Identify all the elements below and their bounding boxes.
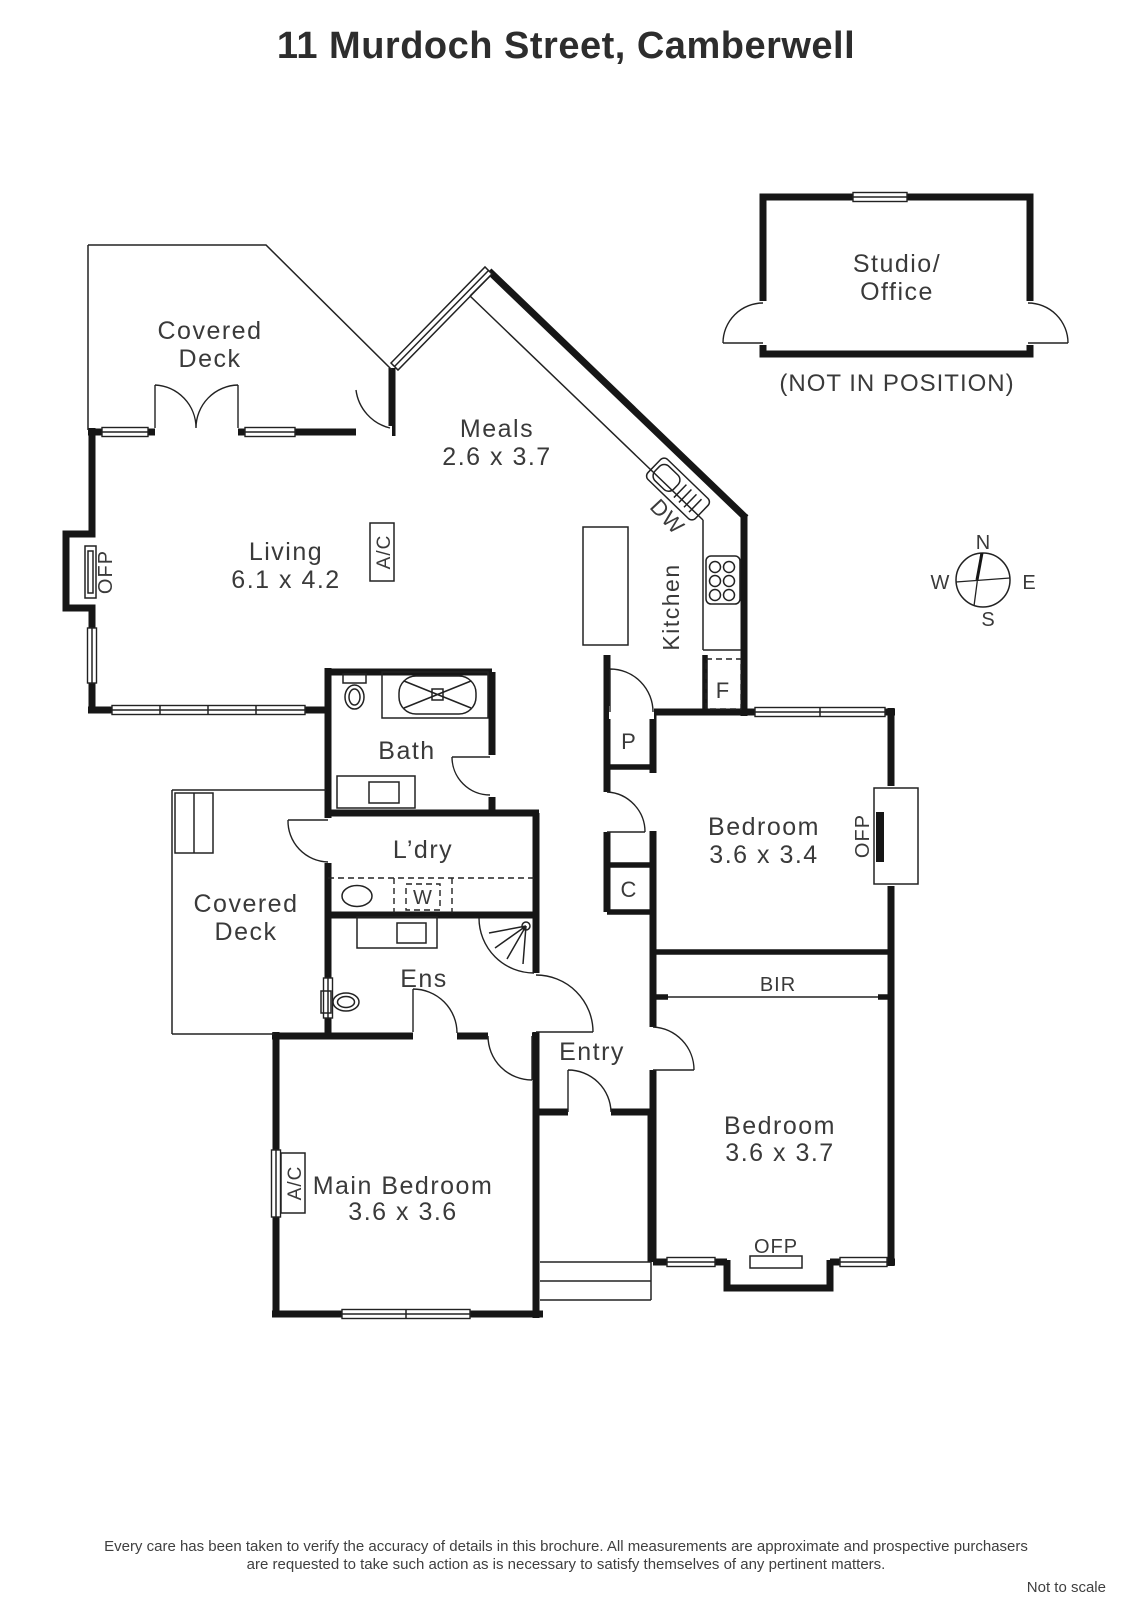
laundry-trough-icon <box>342 886 372 907</box>
bedroom2-bottom-window-right <box>840 1258 887 1267</box>
cooktop-icon <box>706 556 740 604</box>
bathtub-icon <box>382 672 488 718</box>
studio-window <box>853 193 907 202</box>
bedroom1-label: Bedroom <box>708 813 820 841</box>
compass-north-label: N <box>976 532 990 554</box>
meals-label: Meals <box>460 415 534 443</box>
living-top-window-1 <box>102 428 148 437</box>
bath-label: Bath <box>378 737 435 765</box>
living-label: Living <box>249 538 323 566</box>
bedroom2-label: Bedroom <box>724 1112 836 1140</box>
main-bedroom-bottom-window <box>342 1310 470 1319</box>
main-bedroom-left-window <box>272 1150 281 1217</box>
bedroom2-dims: 3.6 x 3.7 <box>725 1139 834 1167</box>
living-ofp-label: OFP <box>95 550 117 594</box>
ensuite-door <box>413 989 457 1033</box>
island-bench <box>583 527 628 645</box>
main-bedroom-dims: 3.6 x 3.6 <box>348 1198 457 1226</box>
compass: N S W E <box>931 532 1036 631</box>
page-title: 11 Murdoch Street, Camberwell <box>277 25 855 67</box>
disclaimer-line-1: Every care has been taken to verify the … <box>104 1538 1028 1555</box>
pantry-door <box>610 669 653 712</box>
scale-note: Not to scale <box>1027 1579 1106 1596</box>
bedroom1-passage-door <box>607 792 645 832</box>
laundry-deck-door <box>288 820 328 862</box>
covered-deck-left-label-2: Deck <box>215 918 278 946</box>
living-top-window-2 <box>245 428 295 437</box>
studio-note: (NOT IN POSITION) <box>779 370 1014 397</box>
living-ac-unit: A/C <box>370 523 395 581</box>
bedroom2-door <box>653 1027 694 1070</box>
main-bedroom-label: Main Bedroom <box>313 1172 494 1200</box>
compass-south-label: S <box>981 609 994 631</box>
entry-label: Entry <box>559 1038 625 1066</box>
pantry-label: P <box>621 729 637 754</box>
main-bedroom-door <box>488 1036 532 1080</box>
covered-deck-top-label-2: Deck <box>179 345 242 373</box>
porch-steps <box>540 1262 651 1300</box>
bath-door <box>452 757 490 795</box>
hall-entry-door <box>536 975 593 1032</box>
meals-dims: 2.6 x 3.7 <box>442 443 551 471</box>
compass-west-label: W <box>931 572 950 594</box>
shower-icon <box>479 918 534 973</box>
living-ac-label: A/C <box>374 535 395 570</box>
bath-toilet-icon <box>343 674 366 709</box>
living-bottom-window <box>112 706 305 715</box>
ensuite-label: Ens <box>400 965 448 993</box>
front-door <box>568 1070 611 1112</box>
laundry-label: L’dry <box>393 836 453 864</box>
washer-label: W <box>413 887 433 909</box>
pantry-door-opening <box>609 706 654 719</box>
bedroom1-dims: 3.6 x 3.4 <box>709 841 818 869</box>
main-bedroom-ac-label: A/C <box>285 1166 306 1201</box>
fridge-label: F <box>716 678 730 703</box>
covered-deck-top-label-1: Covered <box>158 317 263 345</box>
kitchen-label: Kitchen <box>658 563 684 650</box>
studio-label-1: Studio/ <box>853 250 941 278</box>
living-left-window <box>88 628 97 683</box>
living-dims: 6.1 x 4.2 <box>231 566 340 594</box>
meals-diagonal-window <box>391 267 492 370</box>
french-doors <box>155 385 238 428</box>
bedroom2-ofp-label: OFP <box>754 1236 798 1258</box>
meals-deck-door <box>356 390 390 428</box>
compass-east-label: E <box>1022 572 1035 594</box>
disclaimer-line-2: are requested to take such action as is … <box>247 1556 886 1573</box>
bedroom2-bottom-window-left <box>667 1258 715 1267</box>
compass-north-needle-icon <box>977 553 982 580</box>
bedroom1-fireplace <box>870 786 918 886</box>
floor-plan: N S W E 11 Murdoch Street, Camberwell Co… <box>0 0 1131 1600</box>
bir-label: BIR <box>760 974 796 996</box>
main-bedroom-ac-unit: A/C <box>281 1153 306 1213</box>
studio-label-2: Office <box>860 278 934 306</box>
cupboard-label: C <box>621 877 638 902</box>
bedroom1-top-window <box>755 708 885 717</box>
ensuite-vanity <box>357 917 437 948</box>
covered-deck-left-label-1: Covered <box>194 890 299 918</box>
bedroom1-ofp-label: OFP <box>852 814 874 858</box>
meals-door-opening <box>356 426 392 438</box>
bath-vanity <box>337 776 415 808</box>
